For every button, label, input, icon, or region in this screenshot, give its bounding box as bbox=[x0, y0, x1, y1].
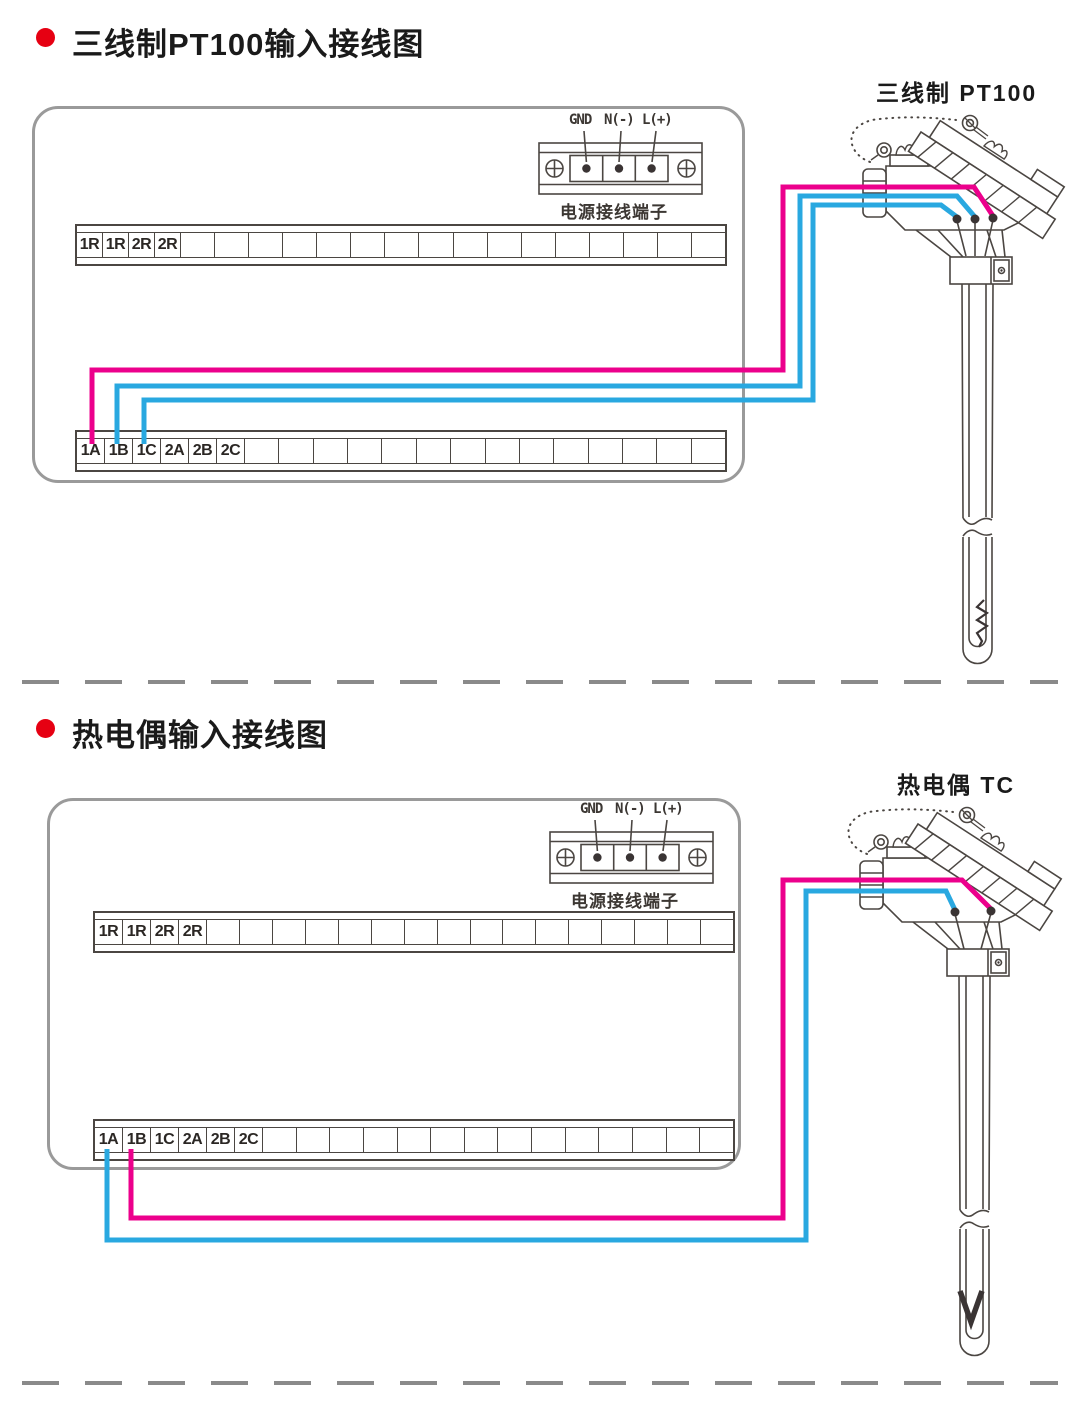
terminal-cell-1c: 1C bbox=[133, 439, 161, 463]
wiring-diagram-page: 三线制PT100输入接线图 GND N(-) L(+) 电源接线端子 1R1R2… bbox=[0, 0, 1080, 1403]
strip-rail bbox=[95, 944, 733, 951]
terminal-cell-empty bbox=[602, 920, 635, 944]
terminal-cell-empty bbox=[522, 233, 556, 257]
terminal-cell-empty bbox=[623, 439, 657, 463]
section2-power-caption: 电源接线端子 bbox=[571, 887, 679, 912]
section1-power-caption: 电源接线端子 bbox=[560, 198, 668, 223]
section1-instrument-panel bbox=[32, 106, 745, 483]
section1-sensor-label: 三线制 PT100 bbox=[876, 74, 1037, 108]
terminal-cell-empty bbox=[635, 920, 668, 944]
terminal-cell-2a: 2A bbox=[161, 439, 189, 463]
terminal-cell-empty bbox=[498, 1128, 532, 1152]
terminal-cell-empty bbox=[283, 233, 317, 257]
terminal-cell-empty bbox=[532, 1128, 566, 1152]
section2-bottom-strip-cells: 1A1B1C2A2B2C bbox=[95, 1128, 733, 1152]
pt100-element-zigzag-icon bbox=[977, 600, 987, 647]
terminal-cell-1r: 1R bbox=[103, 233, 129, 257]
terminal-cell-1r: 1R bbox=[123, 920, 151, 944]
terminal-cell-2r: 2R bbox=[129, 233, 155, 257]
terminal-cell-empty bbox=[465, 1128, 499, 1152]
terminal-cell-2c: 2C bbox=[235, 1128, 263, 1152]
terminal-cell-empty bbox=[364, 1128, 398, 1152]
section2-bottom-terminal-strip: 1A1B1C2A2B2C bbox=[93, 1119, 735, 1161]
strip-rail bbox=[77, 226, 725, 233]
terminal-cell-2b: 2B bbox=[189, 439, 217, 463]
terminal-cell-empty bbox=[503, 920, 536, 944]
terminal-cell-empty bbox=[405, 920, 438, 944]
terminal-cell-empty bbox=[701, 920, 733, 944]
terminal-cell-empty bbox=[486, 439, 520, 463]
terminal-cell-empty bbox=[633, 1128, 667, 1152]
terminal-cell-1r: 1R bbox=[95, 920, 123, 944]
terminal-cell-1b: 1B bbox=[123, 1128, 151, 1152]
terminal-cell-empty bbox=[306, 920, 339, 944]
section1-head-terminal-dots bbox=[953, 214, 998, 224]
terminal-cell-empty bbox=[569, 920, 602, 944]
terminal-cell-empty bbox=[215, 233, 249, 257]
terminal-cell-empty bbox=[692, 233, 725, 257]
terminal-cell-2c: 2C bbox=[217, 439, 245, 463]
terminal-cell-empty bbox=[351, 233, 385, 257]
terminal-cell-empty bbox=[279, 439, 313, 463]
terminal-cell-empty bbox=[249, 233, 283, 257]
terminal-cell-empty bbox=[658, 233, 692, 257]
strip-rail bbox=[77, 463, 725, 470]
line-label: L(+) bbox=[653, 801, 686, 817]
section2-sensor-tc-illustration bbox=[848, 797, 1069, 1355]
terminal-cell-empty bbox=[339, 920, 372, 944]
section2-power-labels: GND N(-) L(+) bbox=[580, 801, 686, 817]
section1-bottom-strip-cells: 1A1B1C2A2B2C bbox=[77, 439, 725, 463]
tc-junction-v-icon bbox=[960, 1291, 982, 1322]
terminal-cell-1a: 1A bbox=[77, 439, 105, 463]
terminal-cell-empty bbox=[348, 439, 382, 463]
terminal-cell-empty bbox=[382, 439, 416, 463]
section1-bullet-icon bbox=[36, 28, 55, 47]
section2-bullet-icon bbox=[36, 719, 55, 738]
neutral-label: N(-) bbox=[615, 801, 648, 817]
terminal-cell-empty bbox=[566, 1128, 600, 1152]
terminal-cell-2r: 2R bbox=[155, 233, 181, 257]
terminal-cell-empty bbox=[451, 439, 485, 463]
terminal-cell-empty bbox=[297, 1128, 331, 1152]
strip-rail bbox=[95, 913, 733, 920]
section1-top-strip-cells: 1R1R2R2R bbox=[77, 233, 725, 257]
terminal-cell-1r: 1R bbox=[77, 233, 103, 257]
terminal-cell-2r: 2R bbox=[179, 920, 207, 944]
terminal-cell-empty bbox=[438, 920, 471, 944]
terminal-cell-empty bbox=[417, 439, 451, 463]
terminal-cell-2a: 2A bbox=[179, 1128, 207, 1152]
section1-sensor-pt100-illustration bbox=[851, 105, 1072, 663]
terminal-cell-empty bbox=[273, 920, 306, 944]
terminal-cell-1a: 1A bbox=[95, 1128, 123, 1152]
terminal-cell-1c: 1C bbox=[151, 1128, 179, 1152]
section2-sensor-label: 热电偶 TC bbox=[897, 766, 1015, 800]
terminal-cell-empty bbox=[240, 920, 273, 944]
section2-top-terminal-strip: 1R1R2R2R bbox=[93, 911, 735, 953]
terminal-cell-2r: 2R bbox=[151, 920, 179, 944]
terminal-cell-empty bbox=[556, 233, 590, 257]
strip-rail bbox=[77, 257, 725, 264]
section1-title: 三线制PT100输入接线图 bbox=[72, 19, 424, 64]
gnd-label: GND bbox=[580, 801, 610, 817]
section1-top-terminal-strip: 1R1R2R2R bbox=[75, 224, 727, 266]
terminal-cell-empty bbox=[372, 920, 405, 944]
terminal-cell-empty bbox=[536, 920, 569, 944]
terminal-cell-empty bbox=[657, 439, 691, 463]
strip-rail bbox=[95, 1152, 733, 1159]
terminal-cell-empty bbox=[471, 920, 504, 944]
terminal-cell-empty bbox=[330, 1128, 364, 1152]
terminal-cell-1b: 1B bbox=[105, 439, 133, 463]
terminal-cell-empty bbox=[700, 1128, 733, 1152]
terminal-cell-empty bbox=[488, 233, 522, 257]
strip-rail bbox=[95, 1121, 733, 1128]
terminal-cell-empty bbox=[314, 439, 348, 463]
terminal-cell-empty bbox=[385, 233, 419, 257]
terminal-cell-empty bbox=[454, 233, 488, 257]
section2-instrument-panel bbox=[47, 798, 741, 1170]
section2-title: 热电偶输入接线图 bbox=[72, 710, 328, 755]
terminal-cell-empty bbox=[263, 1128, 297, 1152]
terminal-cell-empty bbox=[554, 439, 588, 463]
section1-power-labels: GND N(-) L(+) bbox=[569, 112, 675, 128]
terminal-cell-empty bbox=[667, 1128, 701, 1152]
strip-rail bbox=[77, 432, 725, 439]
terminal-cell-empty bbox=[624, 233, 658, 257]
terminal-cell-empty bbox=[317, 233, 351, 257]
terminal-cell-empty bbox=[692, 439, 725, 463]
section2-head-terminal-dots bbox=[951, 907, 996, 917]
terminal-cell-empty bbox=[419, 233, 453, 257]
section1-bottom-terminal-strip: 1A1B1C2A2B2C bbox=[75, 430, 727, 472]
terminal-cell-empty bbox=[207, 920, 240, 944]
terminal-cell-empty bbox=[520, 439, 554, 463]
terminal-cell-empty bbox=[668, 920, 701, 944]
terminal-cell-empty bbox=[590, 233, 624, 257]
section2-top-strip-cells: 1R1R2R2R bbox=[95, 920, 733, 944]
terminal-cell-empty bbox=[245, 439, 279, 463]
terminal-cell-2b: 2B bbox=[207, 1128, 235, 1152]
neutral-label: N(-) bbox=[604, 112, 637, 128]
terminal-cell-empty bbox=[431, 1128, 465, 1152]
terminal-cell-empty bbox=[599, 1128, 633, 1152]
gnd-label: GND bbox=[569, 112, 599, 128]
terminal-cell-empty bbox=[181, 233, 215, 257]
terminal-cell-empty bbox=[589, 439, 623, 463]
terminal-cell-empty bbox=[398, 1128, 432, 1152]
line-label: L(+) bbox=[642, 112, 675, 128]
